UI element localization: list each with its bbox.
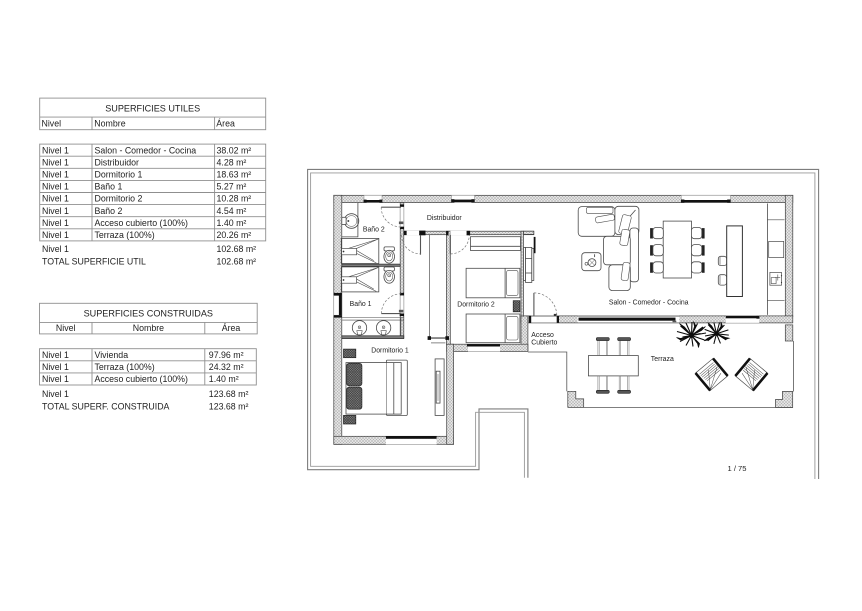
svg-text:Acceso cubierto (100%): Acceso cubierto (100%) xyxy=(95,374,188,384)
svg-text:Nivel 1: Nivel 1 xyxy=(42,218,69,228)
svg-text:Nivel 1: Nivel 1 xyxy=(42,170,69,180)
svg-text:1 / 75: 1 / 75 xyxy=(728,464,747,473)
svg-text:Nombre: Nombre xyxy=(133,323,164,333)
svg-text:1.40 m²: 1.40 m² xyxy=(209,374,239,384)
svg-text:38.02 m²: 38.02 m² xyxy=(217,145,252,155)
svg-text:Nivel 1: Nivel 1 xyxy=(42,230,69,240)
svg-text:Terraza: Terraza xyxy=(651,356,674,363)
svg-text:Nivel 1: Nivel 1 xyxy=(42,182,69,192)
svg-text:97.96 m²: 97.96 m² xyxy=(209,350,244,360)
svg-text:5.27 m²: 5.27 m² xyxy=(217,182,247,192)
svg-text:SUPERFICIES UTILES: SUPERFICIES UTILES xyxy=(105,103,200,113)
svg-text:TOTAL SUPERFICIE UTIL: TOTAL SUPERFICIE UTIL xyxy=(42,257,146,267)
svg-text:4.54 m²: 4.54 m² xyxy=(217,206,247,216)
svg-text:18.63 m²: 18.63 m² xyxy=(217,170,252,180)
svg-text:Distribuidor: Distribuidor xyxy=(95,157,140,167)
svg-text:Nivel 1: Nivel 1 xyxy=(42,206,69,216)
svg-text:Nivel 1: Nivel 1 xyxy=(42,157,69,167)
svg-text:TOTAL SUPERF. CONSTRUIDA: TOTAL SUPERF. CONSTRUIDA xyxy=(42,401,170,411)
svg-text:SUPERFICIES CONSTRUIDAS: SUPERFICIES CONSTRUIDAS xyxy=(84,309,213,319)
svg-text:Salon - Comedor - Cocina: Salon - Comedor - Cocina xyxy=(95,145,197,155)
svg-text:Dormitorio 2: Dormitorio 2 xyxy=(457,301,495,308)
svg-text:Dormitorio 1: Dormitorio 1 xyxy=(371,347,409,354)
svg-text:Dormitorio 1: Dormitorio 1 xyxy=(95,170,143,180)
svg-text:Nivel 1: Nivel 1 xyxy=(42,374,69,384)
svg-text:Dormitorio 2: Dormitorio 2 xyxy=(95,194,143,204)
svg-text:Área: Área xyxy=(216,119,235,129)
svg-text:Nombre: Nombre xyxy=(94,119,125,129)
svg-text:Baño 1: Baño 1 xyxy=(95,182,123,192)
svg-text:Baño 2: Baño 2 xyxy=(363,227,385,234)
svg-text:Nivel: Nivel xyxy=(42,119,62,129)
svg-text:Nivel 1: Nivel 1 xyxy=(42,194,69,204)
svg-text:102.68 m²: 102.68 m² xyxy=(217,244,257,254)
svg-text:Nivel 1: Nivel 1 xyxy=(42,244,69,254)
svg-text:Cubierto: Cubierto xyxy=(531,339,557,346)
svg-text:Acceso: Acceso xyxy=(531,332,554,339)
svg-text:Terraza (100%): Terraza (100%) xyxy=(95,362,155,372)
svg-text:123.68 m²: 123.68 m² xyxy=(209,401,249,411)
svg-text:Área: Área xyxy=(222,323,241,333)
svg-text:Distribuidor: Distribuidor xyxy=(427,215,463,222)
svg-text:Nivel 1: Nivel 1 xyxy=(42,350,69,360)
svg-text:10.28 m²: 10.28 m² xyxy=(217,194,252,204)
svg-text:Nivel 1: Nivel 1 xyxy=(42,362,69,372)
svg-text:Nivel: Nivel xyxy=(56,323,76,333)
svg-text:Salon - Comedor - Cocina: Salon - Comedor - Cocina xyxy=(609,299,689,306)
svg-text:Vivienda: Vivienda xyxy=(95,350,129,360)
svg-text:Acceso cubierto (100%): Acceso cubierto (100%) xyxy=(95,218,188,228)
svg-text:20.26 m²: 20.26 m² xyxy=(217,230,252,240)
svg-text:Nivel 1: Nivel 1 xyxy=(42,389,69,399)
svg-text:24.32 m²: 24.32 m² xyxy=(209,362,244,372)
svg-text:Baño 2: Baño 2 xyxy=(95,206,123,216)
svg-text:4.28 m²: 4.28 m² xyxy=(217,157,247,167)
svg-text:Terraza (100%): Terraza (100%) xyxy=(95,230,155,240)
svg-text:Baño 1: Baño 1 xyxy=(350,301,372,308)
svg-text:Nivel 1: Nivel 1 xyxy=(42,145,69,155)
svg-text:102.68 m²: 102.68 m² xyxy=(217,257,257,267)
svg-text:123.68 m²: 123.68 m² xyxy=(209,389,249,399)
svg-text:1.40 m²: 1.40 m² xyxy=(217,218,247,228)
